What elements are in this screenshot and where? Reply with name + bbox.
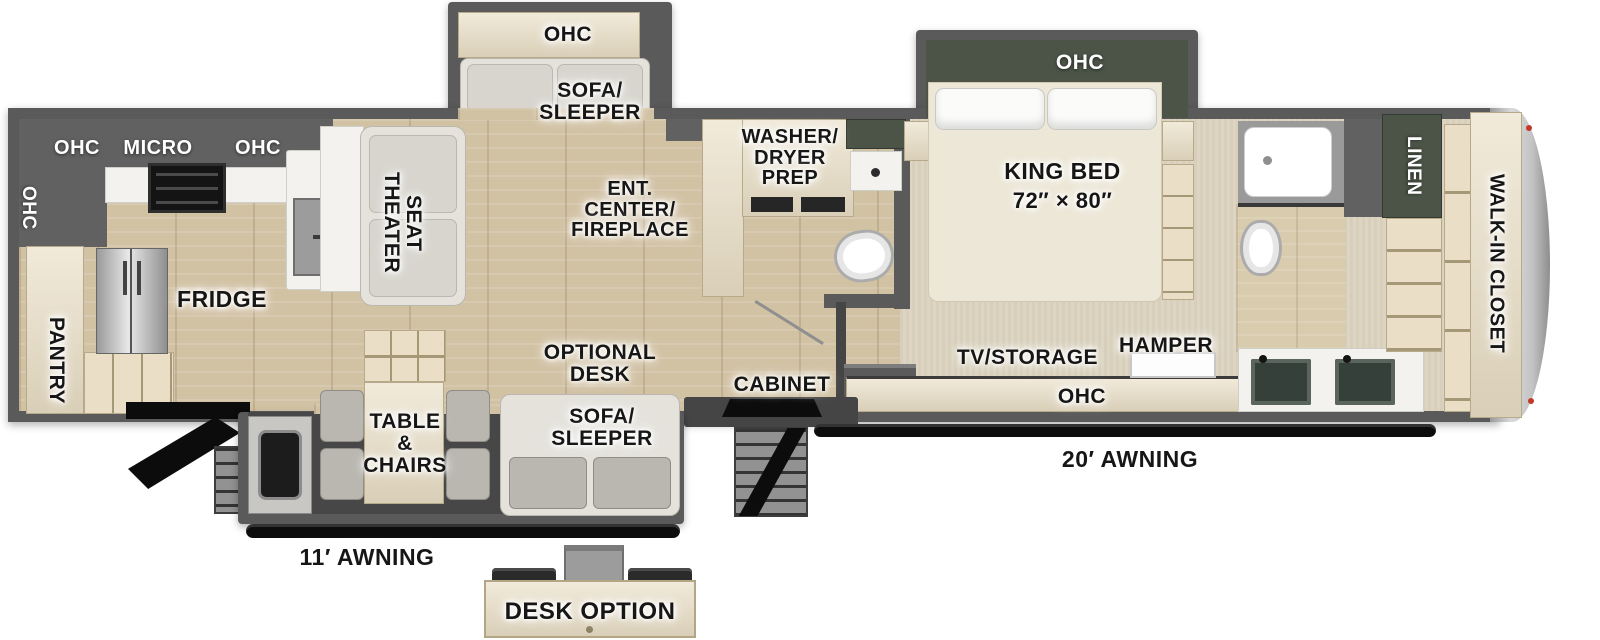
label-tv-storage: TV/STORAGE [945, 345, 1110, 371]
label-sofa-slide-ohc: OHC [508, 22, 628, 48]
label-optional-desk: OPTIONAL DESK [532, 338, 668, 390]
bath-vanity-sink [850, 151, 902, 191]
toilet-front-bath [1240, 220, 1282, 276]
label-ent-center: ENT. CENTER/ FIREPLACE [552, 168, 708, 252]
appliance-slot [751, 197, 793, 212]
slide-window [258, 430, 302, 500]
sofa-seat-cushion [509, 457, 587, 509]
main-entry-opening [722, 399, 822, 417]
label-ohc-kitchen-left: OHC [48, 136, 106, 160]
front-bath-wall-cabinet [1344, 119, 1382, 217]
vessel-sink [1335, 359, 1395, 405]
sofa-seat-cushion [593, 457, 671, 509]
label-ohc-rear: OHC [10, 168, 46, 248]
label-king-ohc: OHC [1010, 50, 1150, 76]
faucet-icon [871, 168, 880, 177]
label-fridge: FRIDGE [166, 286, 278, 314]
awning-11ft-bar [246, 524, 680, 538]
marker-light-bottom [1528, 398, 1534, 404]
rv-floorplan-diagram: OHC OHC MICRO OHC PANTRY FRIDGE THEATER … [0, 0, 1600, 640]
closet-wardrobe-column [1444, 124, 1472, 412]
ent-center-wall-cap [666, 119, 704, 141]
label-king-bed-size: 72″ × 80″ [990, 188, 1135, 214]
pillow [1047, 88, 1157, 130]
label-awning-11: 11′ AWNING [282, 544, 452, 572]
stove-cooktop [148, 163, 226, 213]
label-sofa-sleeper-rear: SOFA/ SLEEPER [536, 402, 668, 454]
stove-grate-line [156, 173, 218, 176]
label-sofa-sleeper-top: SOFA/ SLEEPER [520, 76, 660, 128]
faucet-icon [1259, 355, 1267, 363]
label-linen: LINEN [1394, 124, 1432, 208]
nightstand-right [1162, 121, 1194, 161]
label-table-chairs: TABLE & CHAIRS [352, 404, 458, 484]
label-theater-seat: THEATER SEAT [366, 148, 438, 298]
pillow [935, 88, 1045, 130]
fridge-door-gap [130, 249, 132, 353]
shower-drain-icon [1263, 156, 1272, 165]
stove-grate-line [156, 187, 218, 190]
appliance-slot [801, 197, 845, 212]
stove-grate-line [156, 201, 218, 204]
shower [1238, 121, 1344, 207]
vessel-sink [1251, 359, 1311, 405]
refrigerator [96, 248, 168, 354]
awning-20ft-bar [814, 424, 1436, 437]
label-bedroom-ohc: OHC [1032, 384, 1132, 410]
label-micro: MICRO [114, 136, 202, 160]
label-cabinet: CABINET [722, 372, 842, 398]
label-awning-20: 20′ AWNING [1035, 446, 1225, 474]
label-walk-in-closet: WALK-IN CLOSET [1474, 144, 1518, 384]
fridge-handle-icon [123, 261, 127, 295]
dining-hutch [364, 330, 446, 382]
label-pantry: PANTRY [34, 300, 78, 420]
label-king-bed: KING BED [990, 158, 1135, 186]
slide-end-wall [248, 416, 312, 514]
label-hamper: HAMPER [1106, 333, 1226, 359]
marker-light-top [1526, 125, 1532, 131]
faucet-icon [1343, 355, 1351, 363]
counter-behind-theater-seat [320, 126, 364, 292]
shower-pan [1244, 127, 1332, 197]
rear-entry-opening [126, 402, 250, 419]
label-desk-option: DESK OPTION [490, 596, 690, 628]
label-washer-dryer-prep: WASHER/ DRYER PREP [724, 118, 856, 198]
double-sink-vanity [1238, 348, 1424, 412]
fridge-handle-icon [137, 261, 141, 295]
bedroom-wardrobe [1162, 164, 1194, 300]
closet-shelves [1386, 218, 1442, 352]
label-ohc-kitchen-right: OHC [226, 136, 290, 160]
